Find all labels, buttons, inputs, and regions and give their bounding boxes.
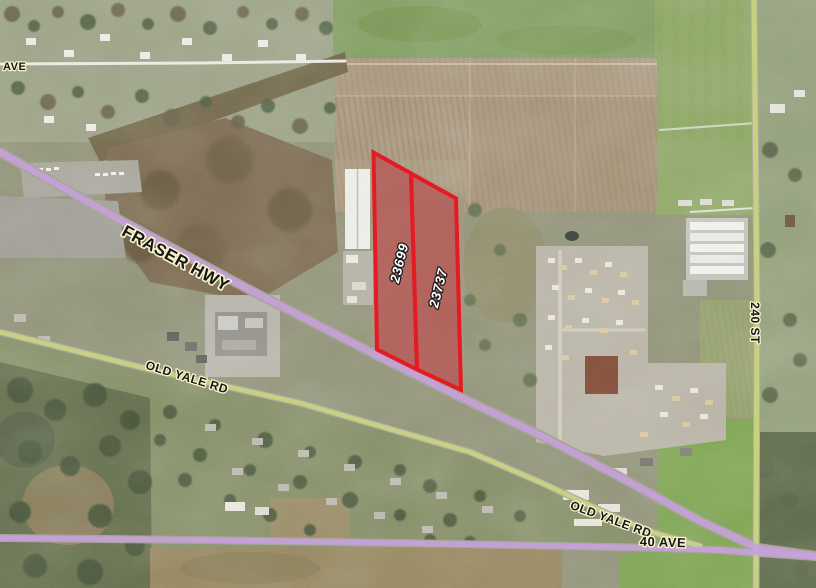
forty-ave-label: 40 AVE <box>640 534 687 551</box>
two-forty-st-road <box>754 0 757 588</box>
ave-label: AVE <box>3 61 26 73</box>
aerial-parcel-map: AVE FRASER HWY OLD YALE RD OLD YALE RD 4… <box>0 0 816 588</box>
two-forty-st-label: 240 ST <box>748 302 762 344</box>
